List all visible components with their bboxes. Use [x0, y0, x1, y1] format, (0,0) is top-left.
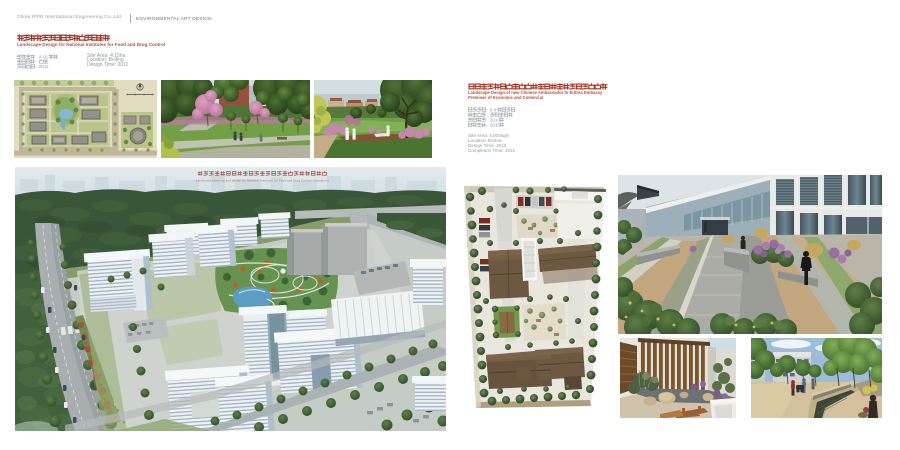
svg-text:: 0.4: : 0.4 — [487, 107, 496, 112]
svg-text:: 2011: : 2011 — [36, 64, 49, 69]
svg-text:: 4.15: : 4.15 — [36, 54, 48, 59]
svg-text:: 2015: : 2015 — [487, 122, 500, 127]
svg-text:Landscape planning and design: Landscape planning and design for Nation… — [196, 179, 329, 183]
